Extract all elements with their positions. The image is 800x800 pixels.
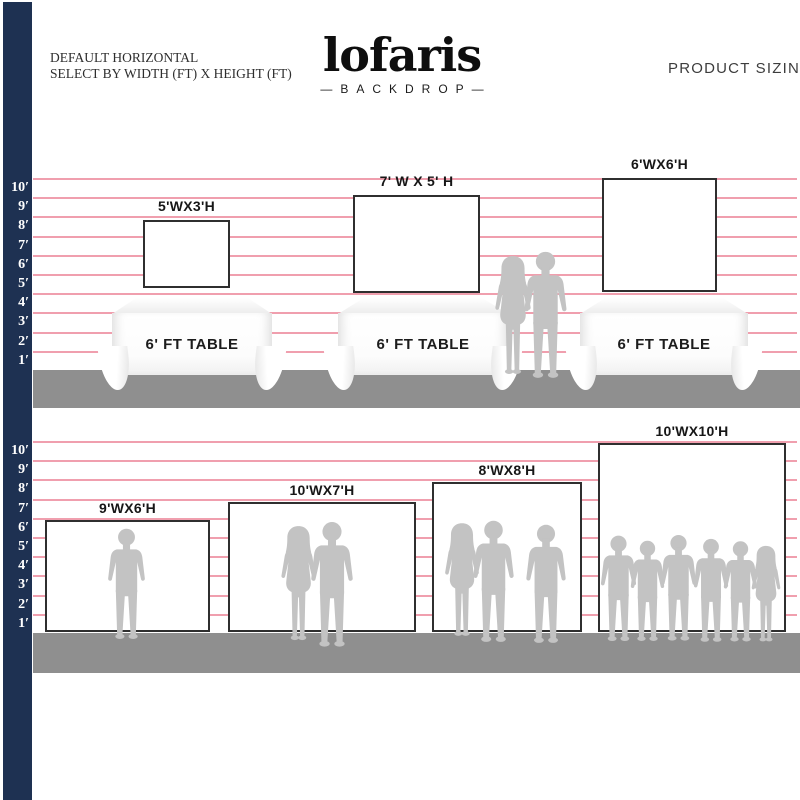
backdrop-size-label: 10'WX10'H: [598, 423, 786, 441]
ruler-tick-label: 8′: [3, 481, 31, 497]
ruler-tick-label: 1′: [3, 353, 31, 369]
table-label: 6' FT TABLE: [338, 336, 508, 353]
table-6ft: 6' FT TABLE: [112, 298, 272, 384]
product-sizing-chart: DEFAULT HORIZONTAL SELECT BY WIDTH (FT) …: [0, 0, 800, 800]
ruler-tick-label: 3′: [3, 314, 31, 330]
ruler-tick-label: 10′: [3, 443, 31, 459]
man-silhouette-icon: [525, 252, 567, 378]
ruler-tick-label: 4′: [3, 558, 31, 574]
backdrop-9x6: [45, 520, 210, 632]
ruler-tick-label: 6′: [3, 257, 31, 273]
backdrop-8x8: [432, 482, 582, 632]
ruler-line: [33, 293, 797, 295]
table-6ft: 6' FT TABLE: [338, 298, 508, 384]
ruler-tick-label: 1′: [3, 616, 31, 632]
table-label: 6' FT TABLE: [112, 336, 272, 353]
tablecloth-top: [580, 298, 748, 314]
lofaris-logo: lofaris —BACKDROP—: [312, 30, 491, 96]
backdrop-size-label: 10'WX7'H: [228, 482, 416, 500]
backdrop-size-label: 6'WX6'H: [602, 156, 717, 174]
tablecloth-top: [338, 298, 508, 314]
tablecloth-top: [112, 298, 272, 314]
logo-subtitle: —BACKDROP—: [312, 82, 491, 96]
backdrop-6x6: [602, 178, 717, 292]
backdrop-10x7: [228, 502, 416, 632]
page-title: PRODUCT SIZING: [668, 60, 800, 77]
ruler-tick-label: 3′: [3, 577, 31, 593]
ruler-tick-label: 5′: [3, 276, 31, 292]
logo-wordmark: lofaris: [312, 30, 491, 80]
backdrop-size-label: 9'WX6'H: [45, 500, 210, 518]
floor-bottom-section: [33, 633, 800, 673]
backdrop-size-label: 8'WX8'H: [432, 462, 582, 480]
ruler-bar: [3, 2, 32, 800]
ruler-tick-label: 9′: [3, 199, 31, 215]
instructions: DEFAULT HORIZONTAL SELECT BY WIDTH (FT) …: [50, 50, 292, 81]
instruction-line-1: DEFAULT HORIZONTAL: [50, 50, 292, 66]
ruler-tick-label: 4′: [3, 295, 31, 311]
ruler-tick-label: 6′: [3, 520, 31, 536]
backdrop-size-label: 7' W X 5' H: [353, 173, 480, 191]
backdrop-5x3: [143, 220, 230, 288]
ruler-tick-label: 7′: [3, 238, 31, 254]
ruler-tick-label: 7′: [3, 501, 31, 517]
instruction-line-2: SELECT BY WIDTH (FT) X HEIGHT (FT): [50, 66, 292, 82]
table-6ft: 6' FT TABLE: [580, 298, 748, 384]
ruler-tick-label: 5′: [3, 539, 31, 555]
ruler-tick-label: 8′: [3, 218, 31, 234]
backdrop-size-label: 5'WX3'H: [143, 198, 230, 216]
ruler-tick-label: 2′: [3, 597, 31, 613]
ruler-tick-label: 9′: [3, 462, 31, 478]
ruler-tick-label: 10′: [3, 180, 31, 196]
backdrop-7x5: [353, 195, 480, 293]
table-label: 6' FT TABLE: [580, 336, 748, 353]
backdrop-10x10: [598, 443, 786, 632]
ruler-tick-label: 2′: [3, 334, 31, 350]
